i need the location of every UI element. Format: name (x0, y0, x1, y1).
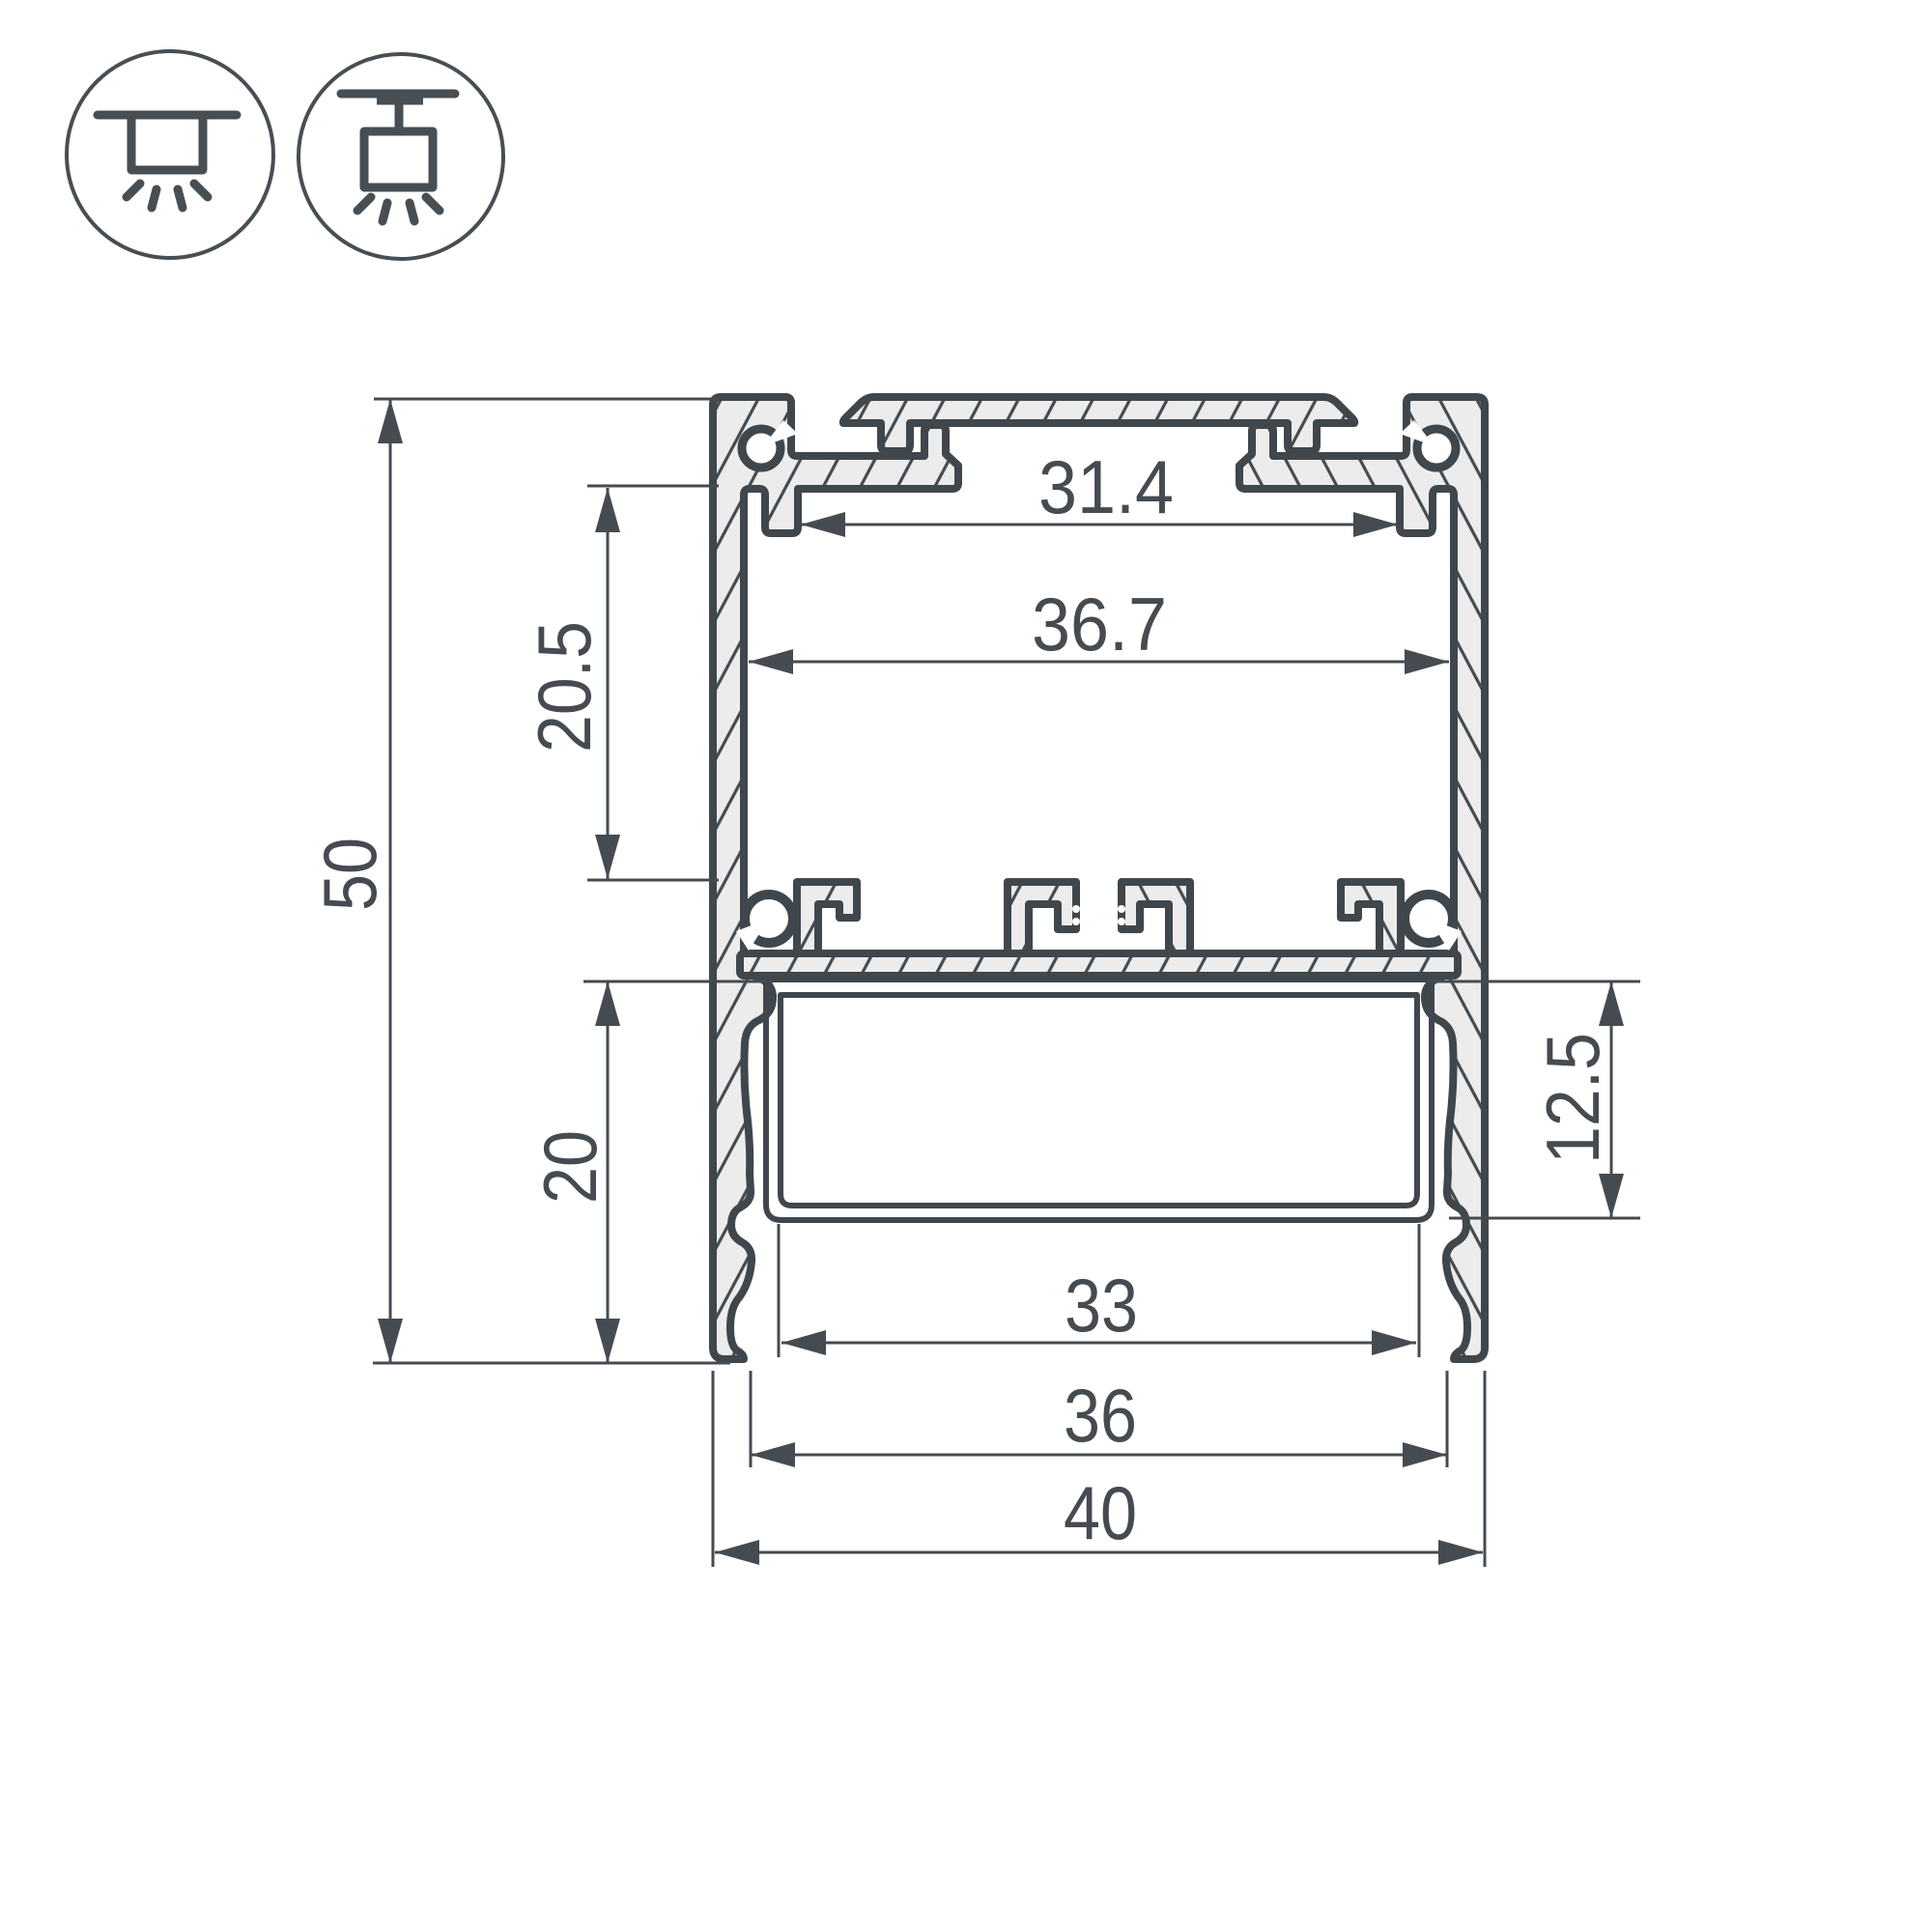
svg-text:20.5: 20.5 (522, 621, 607, 753)
svg-text:36.7: 36.7 (1032, 582, 1167, 667)
svg-text:40: 40 (1064, 1470, 1137, 1555)
svg-text:20: 20 (527, 1130, 612, 1204)
svg-text:50: 50 (307, 838, 392, 911)
svg-text:12.5: 12.5 (1530, 1033, 1615, 1164)
svg-text:36: 36 (1064, 1373, 1137, 1458)
svg-text:33: 33 (1065, 1263, 1138, 1348)
svg-text:31.4: 31.4 (1038, 444, 1174, 529)
